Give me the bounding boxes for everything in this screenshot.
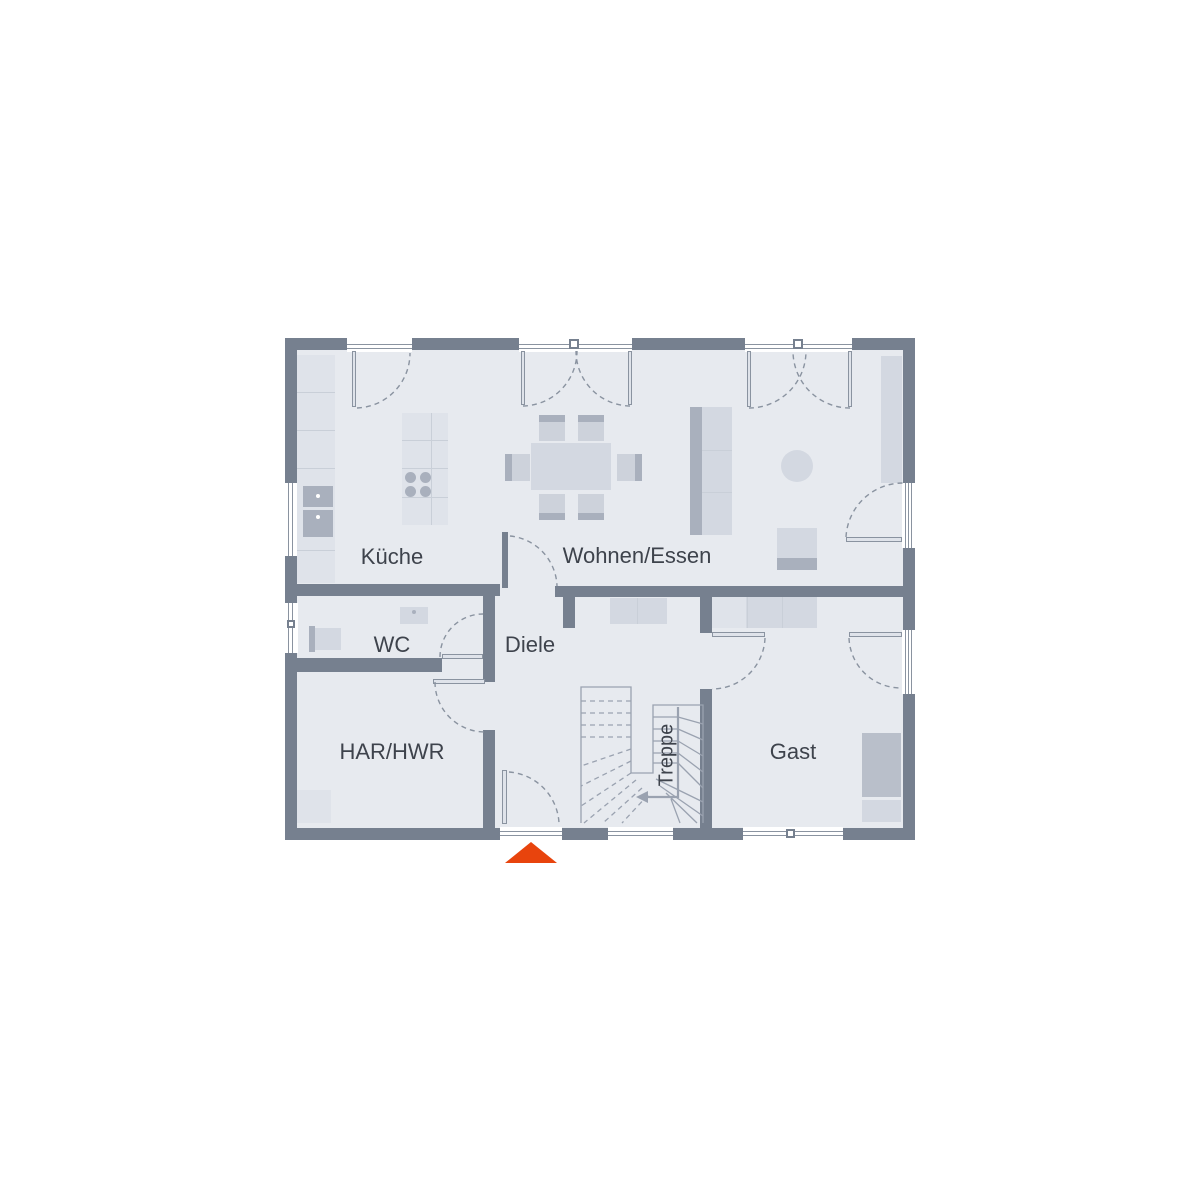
armchair-back [777, 558, 817, 570]
glazing-line [288, 483, 289, 556]
island-divider [402, 468, 448, 469]
threshold-line [500, 831, 562, 832]
room-label-wc: WC [374, 632, 411, 658]
island-divider [402, 440, 448, 441]
kitchen-island [402, 413, 448, 525]
wardrobe-divider [782, 597, 783, 628]
sideboard-divider [637, 598, 638, 624]
counter-divider [297, 550, 335, 551]
wall-guest-west-upper [700, 597, 712, 633]
wall-wc-south [297, 658, 442, 672]
wall-utility-east [483, 730, 495, 828]
kitchen-counter [297, 355, 335, 583]
wall-sideboard [881, 356, 902, 483]
dining-chair [578, 494, 604, 520]
kitchen-sink-unit [303, 486, 333, 507]
french-door1-leaf-left [521, 351, 525, 405]
hall-door-leaf-open [502, 532, 508, 588]
room-label-kitchen: Küche [361, 544, 423, 570]
room-label-hall: Diele [505, 632, 555, 658]
french-door2-leaf-left [747, 351, 751, 407]
armchair [777, 528, 817, 570]
guest-bed [862, 733, 901, 797]
dining-chair [578, 415, 604, 441]
room-label-stairs: Treppe [656, 724, 679, 787]
counter-divider [297, 430, 335, 431]
burner [420, 472, 431, 483]
living-terrace-door-opening [902, 483, 916, 548]
basin-dot [412, 610, 416, 614]
glazing-line [292, 483, 293, 556]
kitchen-window [284, 483, 298, 556]
entrance-marker [505, 842, 557, 863]
guest-window [743, 827, 843, 841]
glazing-line [347, 348, 412, 349]
glazing-line [288, 603, 289, 653]
guest-wardrobe [712, 597, 817, 628]
glazing-line [911, 630, 912, 694]
wardrobe-section [712, 597, 746, 628]
kitchen-terrace-door-leaf [352, 351, 356, 407]
burner [405, 486, 416, 497]
guest-room-door-leaf [712, 632, 765, 637]
guest-terrace-door-opening [902, 630, 916, 694]
french-door2-leaf-right [848, 351, 852, 407]
living-terrace-door-leaf [846, 537, 902, 542]
window-handle [287, 620, 295, 628]
kitchen-oven [303, 510, 333, 537]
dining-chair [539, 415, 565, 441]
shelf-divider [702, 492, 732, 493]
shelf-back-panel [690, 407, 702, 535]
round-side-table [781, 450, 813, 482]
room-label-guest: Gast [770, 739, 816, 765]
dining-chair [617, 454, 642, 481]
guest-terrace-door-leaf [849, 632, 902, 637]
french-door-opening-1 [519, 338, 632, 352]
dining-chair [505, 454, 530, 481]
outer-wall-left [285, 338, 297, 840]
wall-kitchen-south [297, 584, 500, 596]
room-label-utility: HAR/HWR [339, 739, 444, 765]
burner [420, 486, 431, 497]
shelf-divider [702, 450, 732, 451]
dining-chair [539, 494, 565, 520]
glazing-line [908, 483, 909, 548]
glazing-line [347, 344, 412, 345]
counter-divider [297, 468, 335, 469]
floor-plan: Küche Wohnen/Essen WC Diele HAR/HWR Gast… [0, 0, 1200, 1200]
glazing-line [911, 483, 912, 548]
stair-window [608, 827, 673, 841]
wall-stairwell-spur [563, 597, 575, 628]
wall-living-south [555, 586, 903, 597]
door-handle [569, 339, 579, 349]
sink-dot [316, 494, 320, 498]
outer-wall-right [903, 338, 915, 840]
glazing-line [905, 483, 906, 548]
guest-bed-pillow [862, 800, 901, 822]
island-divider [402, 497, 448, 498]
wc-window [284, 603, 298, 653]
washbasin [400, 607, 428, 624]
counter-divider [297, 392, 335, 393]
wardrobe-divider [747, 597, 748, 628]
glazing-line [608, 831, 673, 832]
oven-dot [316, 515, 320, 519]
entrance-door-leaf [502, 770, 507, 824]
glazing-line [292, 603, 293, 653]
wc-door-leaf [442, 654, 483, 659]
threshold-line [500, 835, 562, 836]
utility-appliance [297, 790, 331, 823]
window-handle [786, 829, 795, 838]
shelf-unit [702, 407, 732, 535]
glazing-line [905, 630, 906, 694]
wall-guest-west-lower [700, 689, 712, 828]
hall-sideboard [610, 598, 667, 624]
wall-wc-east [483, 596, 495, 682]
kitchen-terrace-door-opening [347, 338, 412, 352]
toilet [315, 628, 341, 650]
room-label-living-dining: Wohnen/Essen [563, 543, 712, 569]
entrance-door-opening [500, 827, 562, 841]
door-handle [793, 339, 803, 349]
glazing-line [908, 630, 909, 694]
burner [405, 472, 416, 483]
french-door-opening-2 [745, 338, 852, 352]
dining-table [531, 443, 611, 490]
island-divider [431, 413, 432, 525]
utility-door-leaf [433, 679, 485, 684]
french-door1-leaf-right [628, 351, 632, 405]
glazing-line [608, 835, 673, 836]
